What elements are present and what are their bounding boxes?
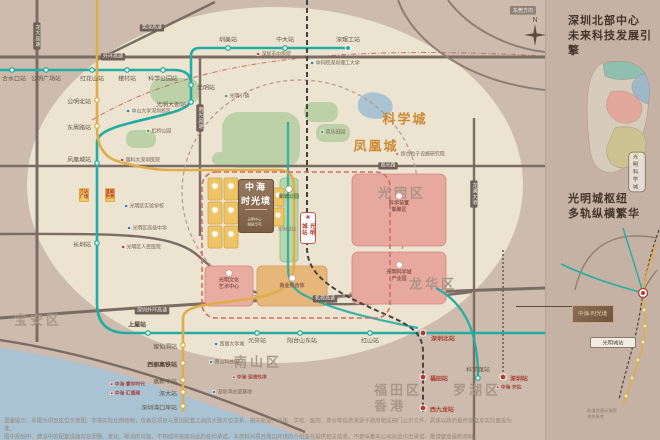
project-marker-icon	[232, 375, 235, 378]
science-city-badge: 光明科学城	[628, 152, 645, 193]
school-icon	[212, 390, 216, 394]
school-icon	[127, 226, 131, 230]
panel-canvas	[545, 0, 660, 440]
mall-badge: 万达广场	[79, 188, 89, 202]
station-label: 光明站	[197, 84, 215, 93]
plot-label: 光明科学城产业园	[386, 261, 411, 282]
station-label: 元芬站	[248, 337, 266, 346]
station-label: 高新中站	[153, 378, 177, 387]
station-marker	[181, 390, 185, 394]
station-label: 公明北站	[67, 98, 91, 107]
landmark-chip: 光明区实验学校	[124, 203, 164, 210]
landmark-chip: 深圳湾总部基地	[212, 389, 252, 396]
station-marker	[420, 405, 426, 411]
station-marker	[44, 68, 48, 72]
station-label: 红山站	[361, 337, 379, 346]
mall-badge: 蓝鲸世界	[105, 188, 115, 202]
road-badge: 龙大高速	[33, 22, 40, 49]
mini-map-project-label: 中海·时光境	[578, 310, 607, 318]
school-icon	[310, 61, 314, 65]
landmark-chip: 西丽大学城	[214, 341, 244, 348]
road-badge: 机荷高速	[313, 295, 337, 302]
station-label: 西九龙站	[430, 406, 454, 415]
disclaimer: 温馨提示：本图为项目区位示意图，非按实际比例绘制，仅表达项目与周边配套之间的大致…	[4, 418, 519, 440]
station-label: 西丽高铁站	[147, 361, 177, 370]
district-label: 龙华区	[409, 274, 457, 293]
station-marker	[90, 68, 94, 72]
school-icon	[209, 360, 213, 364]
station-marker	[420, 330, 426, 336]
station-marker	[181, 343, 185, 347]
hospital-icon	[256, 52, 260, 56]
landmark-chip: 深圳市中医院	[256, 51, 291, 58]
district-label: 罗湖区	[453, 380, 501, 399]
station-label: 深理工站	[336, 36, 360, 45]
project-marker-icon	[110, 382, 113, 385]
plot-icon	[395, 261, 402, 268]
station-marker	[95, 161, 99, 165]
landmark-chip: 光明区人民医院	[121, 244, 161, 251]
station-label: 楼村站	[118, 75, 136, 84]
station-label: 科学公园站	[148, 75, 178, 84]
area-label: 凤凰城	[353, 136, 398, 155]
road-badge: 龙澜大道	[470, 180, 477, 207]
station-marker	[345, 45, 350, 50]
station-marker	[255, 331, 259, 335]
station-label: 长圳站	[73, 241, 91, 250]
sister-project-legend: 中海·深湾玖序	[232, 374, 267, 381]
plot-icon	[395, 192, 402, 199]
sci-icon	[395, 152, 399, 156]
station-label: 上屋站	[128, 321, 146, 330]
district-label: 南山区	[234, 352, 282, 371]
landmark-chip: 光明区高级中学	[127, 225, 167, 232]
landmark-chip: 中科院深圳理工大学	[310, 60, 360, 67]
station-label: 中大站	[276, 36, 294, 45]
sister-project-legend: 中海·天钻	[496, 384, 521, 391]
landmark-chip: 国科大深圳医院	[120, 157, 160, 164]
landmark-chip: 欢乐田园	[320, 129, 345, 136]
school-icon	[214, 342, 218, 346]
road-badge: 南光高速	[196, 104, 203, 131]
project-name-line1: 中海	[245, 180, 267, 193]
landmark-chip: 虹桥公园	[146, 128, 171, 135]
area-label: 科学城	[382, 109, 427, 128]
road-badge: 观光路	[378, 162, 397, 169]
station-label: 圳美站	[219, 36, 237, 45]
station-marker	[95, 124, 99, 128]
road-badge: 深圳外环高速	[135, 307, 170, 314]
project-marker-icon	[110, 391, 113, 394]
station-marker	[125, 68, 129, 72]
location-map-page: 合水口站公明广场站红花山站楼村站科学公园站光明站光明大街站圳美站中大站深理工站凤…	[0, 0, 660, 440]
project-marker-icon	[496, 385, 499, 388]
plot-icon	[225, 269, 232, 276]
station-label: 公明广场站	[31, 75, 61, 84]
district-label: 香港	[374, 396, 406, 415]
station-label: 红花山站	[80, 75, 104, 84]
station-label: 合水口站	[2, 75, 26, 84]
divider-line	[245, 209, 267, 210]
svg-text:N: N	[532, 17, 537, 24]
station-label: 深圳湾口岸站	[141, 404, 177, 413]
station-marker	[181, 404, 185, 408]
road-badge: 外环高速	[101, 53, 125, 60]
station-marker	[95, 241, 99, 245]
park-icon	[146, 129, 150, 133]
station-marker	[181, 378, 185, 382]
plot-label: 科学装置集聚区	[389, 192, 409, 213]
plot-label: 商业综合体	[279, 275, 304, 290]
station-marker	[189, 100, 193, 104]
station-label: 深圳站	[510, 375, 528, 384]
hub-station-label: 光明城站	[603, 339, 624, 347]
landmark-chip: 光明小镇	[224, 93, 249, 100]
station-label: 深圳北站	[431, 335, 455, 344]
school-icon	[126, 109, 130, 113]
station-marker	[298, 331, 302, 335]
station-marker	[146, 331, 150, 335]
station-marker	[189, 83, 193, 87]
station-marker	[95, 98, 99, 102]
landmark-chip: 中山大学深圳校区	[126, 108, 171, 115]
sister-project-legend: 中海·汇德理	[110, 390, 140, 397]
station-marker	[226, 46, 230, 50]
station-label: 东周路站	[67, 124, 91, 133]
station-label: 深大站	[159, 390, 177, 399]
station-label: 福田站	[430, 375, 448, 384]
hospital-icon	[120, 158, 124, 162]
station-label: 阳台山东站	[287, 337, 317, 346]
sister-project-legend: 中海·寰宇时代	[110, 381, 145, 388]
plot-label: 光明文化艺术中心	[219, 269, 239, 290]
station-marker	[181, 361, 185, 365]
landmark-chip: 综合粒子设施研究院	[395, 151, 445, 158]
plot-icon	[285, 186, 292, 193]
project-name-line2: 时光境	[241, 194, 271, 207]
hub-station-badge: 光明城站	[590, 337, 636, 348]
park-icon	[320, 130, 324, 134]
station-label: 科学馆站	[466, 366, 490, 375]
district-label: 宝安区	[14, 310, 62, 329]
landmark-chip: 南山科技园	[209, 359, 239, 366]
project-logo-box: 中海 时光境 光明中心·瞰景华宅	[238, 179, 274, 233]
plot-label: 新城公园	[279, 186, 299, 201]
station-marker	[368, 331, 372, 335]
school-icon	[124, 204, 128, 208]
station-badge-label: 光明城站	[300, 223, 316, 241]
disclaimer-line2: 图中规划中、建设中的配套设施存在调整、变化、取消的可能，不构成开发商对此的任何承…	[4, 434, 519, 440]
plot-icon	[288, 275, 295, 282]
mini-map-caption: 轨道交通示意图 仅供参考	[587, 408, 621, 420]
hospital-icon	[121, 245, 125, 249]
station-label: 留仙洞站	[153, 343, 177, 352]
road-badge: 莞深高速	[140, 24, 164, 31]
station-note: 光明城站	[278, 226, 296, 233]
project-subtitle: 光明中心·瞰景华宅	[248, 217, 265, 227]
rosette-icon: ❀	[305, 215, 310, 221]
station-marker	[10, 68, 14, 72]
station-label: 凤凰城站	[67, 156, 91, 165]
disclaimer-line1: 温馨提示：本图为项目区位示意图，非按实际比例绘制，仅表达项目与周边配套之间的大致…	[4, 418, 519, 434]
park-icon	[224, 94, 228, 98]
guangmingcheng-station-badge: ❀ 光明城站	[300, 212, 316, 244]
station-marker	[161, 68, 165, 72]
mini-map-project-box: 中海·时光境	[572, 305, 614, 323]
